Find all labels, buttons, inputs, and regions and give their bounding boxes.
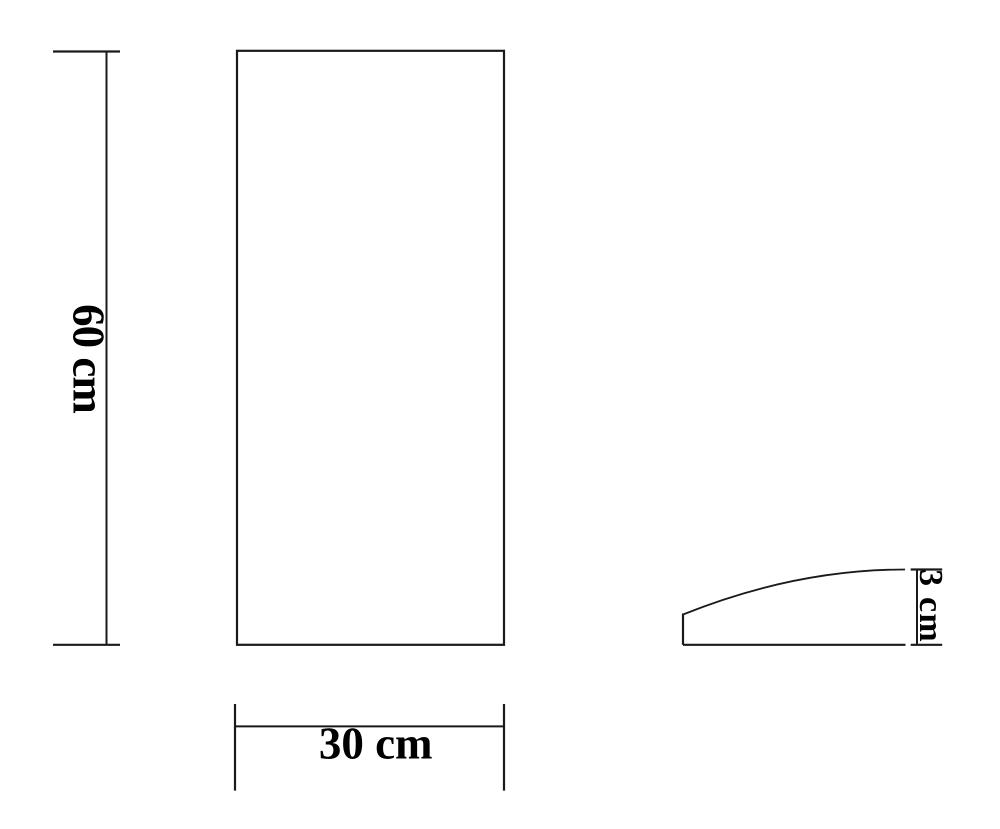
svg-text:3 cm: 3 cm: [912, 569, 949, 643]
svg-text:30 cm: 30 cm: [319, 719, 433, 769]
svg-text:60 cm: 60 cm: [64, 304, 114, 413]
